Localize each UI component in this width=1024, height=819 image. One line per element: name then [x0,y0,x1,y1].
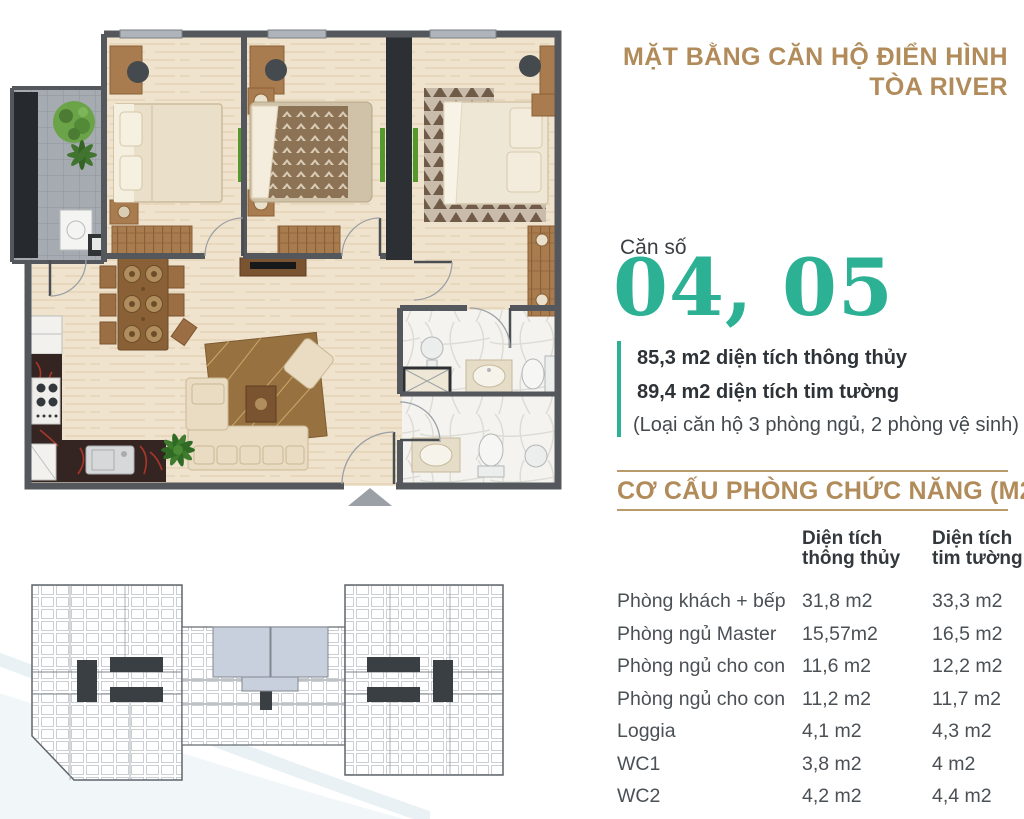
washer [60,210,92,250]
palm-plant-icon [67,140,97,170]
master-wardrobe [112,226,192,254]
table-row: Phòng ngủ Master 15,57m2 16,5 m2 [617,621,1017,654]
section-title: CƠ CẤU PHÒNG CHỨC NĂNG (M2) [617,477,1008,506]
accent-bar [617,341,621,437]
column-header-net: Diện tích thông thủy [802,530,922,570]
table-row: Phòng khách + bếp 31,8 m2 33,3 m2 [617,588,1017,621]
column-header-gross: Diện tích tim tường [932,530,1024,570]
dining-set [100,258,197,350]
master-bed [114,104,222,202]
table-row: Phòng ngủ cho con 11,2 m2 11,7 m2 [617,686,1017,719]
table-row: WC1 3,8 m2 4 m2 [617,751,1017,784]
page-title-line1: MẶT BẰNG CĂN HỘ ĐIỂN HÌNH [400,42,1008,72]
table-row: Phòng ngủ cho con 11,6 m2 12,2 m2 [617,653,1017,686]
page-title-line2: TÒA RIVER [400,72,1008,102]
bedroom3-bed [444,102,548,204]
table-row: Loggia 4,1 m2 4,3 m2 [617,718,1017,751]
unit-numbers: 04, 05 [613,246,894,330]
unit-type-note: (Loại căn hộ 3 phòng ngủ, 2 phòng vệ sin… [633,414,1019,437]
loggia [12,88,106,262]
table-row: WC2 4,2 m2 4,4 m2 [617,783,1017,816]
entry-arrow-icon [348,488,392,506]
windows [120,30,496,38]
room-areas-table: Diện tích thông thủy Diện tích tim tường… [617,530,1017,815]
page-title: MẶT BẰNG CĂN HỘ ĐIỂN HÌNH TÒA RIVER [400,42,1008,102]
table-rows: Phòng khách + bếp 31,8 m2 33,3 m2 Phòng … [617,588,1017,816]
building-floorplan [10,572,515,812]
plant-icon [53,101,95,143]
bedroom2-bed [250,102,372,202]
gross-area-text: 89,4 m2 diện tích tim tường [637,381,899,404]
loggia-panel [14,92,38,258]
net-area-text: 85,3 m2 diện tích thông thủy [637,347,907,370]
divider-bottom [617,509,1008,511]
bedroom2-wardrobe [278,226,340,254]
tv [250,262,296,269]
brochure-page: MẶT BẰNG CĂN HỘ ĐIỂN HÌNH TÒA RIVER Căn … [0,0,1024,819]
divider-top [617,470,1008,472]
fridge [30,316,62,354]
